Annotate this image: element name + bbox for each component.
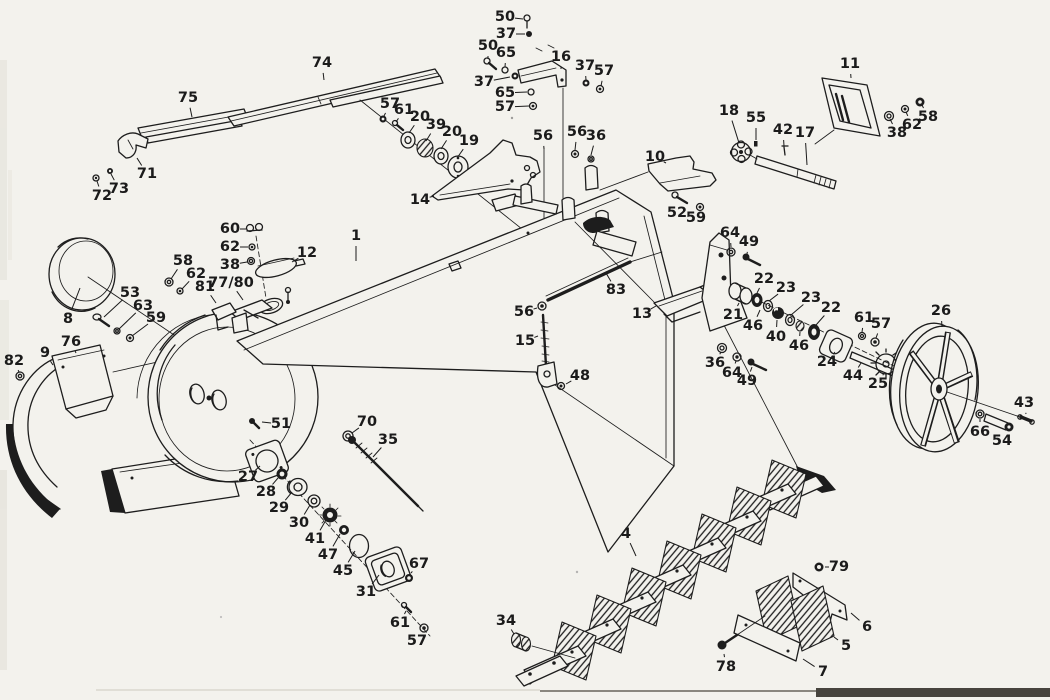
plates-5-6-7-group bbox=[718, 563, 848, 662]
part-number-67: 67 bbox=[409, 556, 429, 572]
callout-leader-6 bbox=[851, 613, 859, 620]
part-8-ring bbox=[49, 238, 186, 343]
part-number-50: 50 bbox=[495, 9, 515, 25]
part-number-38: 38 bbox=[220, 257, 240, 273]
callout-leader-56 bbox=[575, 142, 576, 150]
part-number-14: 14 bbox=[410, 192, 430, 208]
callout-leader-5 bbox=[834, 637, 838, 640]
callout-leader-50 bbox=[515, 18, 523, 19]
callout-leader-77-80 bbox=[237, 291, 243, 300]
part-number-71: 71 bbox=[137, 166, 157, 182]
part-number-29: 29 bbox=[269, 500, 289, 516]
callout-leader-57 bbox=[601, 81, 602, 86]
part-number-74: 74 bbox=[312, 55, 332, 71]
part-number-28: 28 bbox=[256, 484, 276, 500]
part-number-1: 1 bbox=[351, 228, 361, 244]
part-number-46: 46 bbox=[789, 338, 809, 354]
part-number-77-80: 77/80 bbox=[208, 275, 254, 291]
callout-leader-4 bbox=[630, 543, 636, 556]
part-number-64: 64 bbox=[720, 225, 740, 241]
part-17-shaft-group bbox=[731, 141, 837, 189]
part-number-22: 22 bbox=[754, 271, 774, 287]
part-number-45: 45 bbox=[333, 563, 353, 579]
part-number-83: 83 bbox=[606, 282, 626, 298]
part-number-51: 51 bbox=[271, 416, 291, 432]
part-number-54: 54 bbox=[992, 433, 1012, 449]
part-number-30: 30 bbox=[289, 515, 309, 531]
callout-leader-71 bbox=[137, 158, 142, 166]
part-number-27: 27 bbox=[238, 469, 258, 485]
part-number-16: 16 bbox=[551, 49, 571, 65]
part-number-23: 23 bbox=[801, 290, 821, 306]
part-number-9: 9 bbox=[40, 345, 50, 361]
part-number-7: 7 bbox=[818, 664, 828, 680]
part-number-60: 60 bbox=[220, 221, 240, 237]
part-number-11: 11 bbox=[840, 56, 860, 72]
part-number-26: 26 bbox=[931, 303, 951, 319]
part-number-56: 56 bbox=[533, 128, 553, 144]
exploded-parts-diagram: 7475717372503750653716375765575761203920… bbox=[0, 0, 1050, 700]
page-edge bbox=[96, 688, 1050, 697]
callout-leader-57 bbox=[384, 113, 386, 116]
part-number-18: 18 bbox=[719, 103, 739, 119]
part-number-57: 57 bbox=[594, 63, 614, 79]
part-number-78: 78 bbox=[716, 659, 736, 675]
part-71-clip bbox=[118, 133, 148, 158]
part-number-57: 57 bbox=[495, 99, 515, 115]
callout-leader-61 bbox=[404, 611, 406, 614]
part-number-31: 31 bbox=[356, 584, 376, 600]
part-number-79: 79 bbox=[829, 559, 849, 575]
part-75-rail bbox=[138, 109, 248, 143]
part-number-22: 22 bbox=[821, 300, 841, 316]
callout-leader-46 bbox=[757, 310, 760, 317]
part-number-58: 58 bbox=[918, 109, 938, 125]
part-number-59: 59 bbox=[686, 210, 706, 226]
part-number-61: 61 bbox=[390, 615, 410, 631]
callout-leader-53 bbox=[104, 300, 123, 317]
part-number-56: 56 bbox=[514, 304, 534, 320]
part-number-66: 66 bbox=[970, 424, 990, 440]
part-number-19: 19 bbox=[459, 133, 479, 149]
part-number-21: 21 bbox=[723, 307, 743, 323]
callout-leader-9 bbox=[51, 361, 53, 365]
part-number-75: 75 bbox=[178, 90, 198, 106]
callout-leader-57 bbox=[515, 106, 529, 107]
part-number-44: 44 bbox=[843, 368, 863, 384]
callout-leader-22 bbox=[757, 288, 760, 293]
callout-leader-17 bbox=[806, 143, 807, 165]
part-number-40: 40 bbox=[766, 329, 786, 345]
callout-leader-36 bbox=[591, 146, 593, 155]
diagram-canvas: 7475717372503750653716375765575761203920… bbox=[0, 0, 1050, 700]
part-number-12: 12 bbox=[297, 245, 317, 261]
part-number-42: 42 bbox=[773, 122, 793, 138]
callout-leader-44 bbox=[858, 363, 861, 367]
callout-leader-30 bbox=[304, 505, 310, 514]
part-number-37: 37 bbox=[474, 74, 494, 90]
chain-paddles bbox=[524, 460, 806, 684]
part-number-52: 52 bbox=[667, 205, 687, 221]
part-number-5: 5 bbox=[841, 638, 851, 654]
callout-leader-29 bbox=[285, 492, 292, 500]
part-11-frame-group bbox=[815, 78, 925, 144]
part-number-57: 57 bbox=[871, 316, 891, 332]
part-number-8: 8 bbox=[63, 311, 73, 327]
part-number-24: 24 bbox=[817, 354, 837, 370]
callout-leader-72 bbox=[97, 181, 99, 187]
callout-leader-64 bbox=[735, 361, 736, 364]
callout-leader-58 bbox=[922, 105, 924, 108]
part-number-34: 34 bbox=[496, 613, 516, 629]
callout-leader-7 bbox=[803, 659, 815, 667]
part-number-76: 76 bbox=[61, 334, 81, 350]
part-number-59: 59 bbox=[146, 310, 166, 326]
part-callouts: 7475717372503750653716375765575761203920… bbox=[4, 9, 1034, 680]
callout-leader-20 bbox=[409, 125, 414, 133]
part-number-62: 62 bbox=[220, 239, 240, 255]
callout-leader-8 bbox=[72, 288, 80, 310]
callout-leader-47 bbox=[333, 534, 340, 546]
callout-leader-35 bbox=[373, 447, 381, 457]
part-number-65: 65 bbox=[496, 45, 516, 61]
part-number-55: 55 bbox=[746, 110, 766, 126]
part-number-46: 46 bbox=[743, 318, 763, 334]
part-number-15: 15 bbox=[515, 333, 535, 349]
callout-leader-65 bbox=[515, 92, 527, 93]
callout-leader-73 bbox=[111, 174, 114, 180]
callout-leader-62 bbox=[182, 281, 189, 289]
part-number-49: 49 bbox=[739, 234, 759, 250]
part-number-47: 47 bbox=[318, 547, 338, 563]
part-number-82: 82 bbox=[4, 353, 24, 369]
part-number-6: 6 bbox=[862, 619, 872, 635]
part-number-13: 13 bbox=[632, 306, 652, 322]
callout-leader-34 bbox=[511, 630, 514, 634]
part-number-48: 48 bbox=[570, 368, 590, 384]
callout-leader-81 bbox=[211, 295, 216, 303]
part-number-57: 57 bbox=[407, 633, 427, 649]
left-stack-group bbox=[244, 418, 430, 636]
part-number-23: 23 bbox=[776, 280, 796, 296]
fasteners-72-73 bbox=[93, 168, 113, 181]
part-number-72: 72 bbox=[92, 188, 112, 204]
part-number-70: 70 bbox=[357, 414, 377, 430]
callout-leader-61 bbox=[862, 328, 863, 332]
part-number-56: 56 bbox=[567, 124, 587, 140]
part-number-43: 43 bbox=[1014, 395, 1034, 411]
callout-leader-75 bbox=[190, 108, 192, 117]
part-number-37: 37 bbox=[496, 26, 516, 42]
callout-leader-37 bbox=[494, 77, 510, 80]
callout-leader-74 bbox=[323, 73, 324, 80]
part-number-25: 25 bbox=[868, 376, 888, 392]
callout-leader-57 bbox=[876, 333, 878, 338]
part-number-10: 10 bbox=[645, 149, 665, 165]
callout-leader-23 bbox=[791, 304, 803, 315]
callout-leader-18 bbox=[732, 121, 739, 143]
callout-leader-38 bbox=[240, 262, 247, 263]
part-number-41: 41 bbox=[305, 531, 325, 547]
callout-leader-63 bbox=[119, 313, 136, 329]
callout-leader-22 bbox=[816, 315, 824, 325]
part-number-49: 49 bbox=[737, 373, 757, 389]
part-number-17: 17 bbox=[795, 125, 815, 141]
part-number-4: 4 bbox=[621, 526, 631, 542]
callout-leader-58 bbox=[171, 269, 177, 279]
part-number-37: 37 bbox=[575, 58, 595, 74]
part-number-35: 35 bbox=[378, 432, 398, 448]
part-number-36: 36 bbox=[586, 128, 606, 144]
callout-leader-20 bbox=[441, 140, 447, 149]
callout-leader-49 bbox=[750, 367, 752, 372]
